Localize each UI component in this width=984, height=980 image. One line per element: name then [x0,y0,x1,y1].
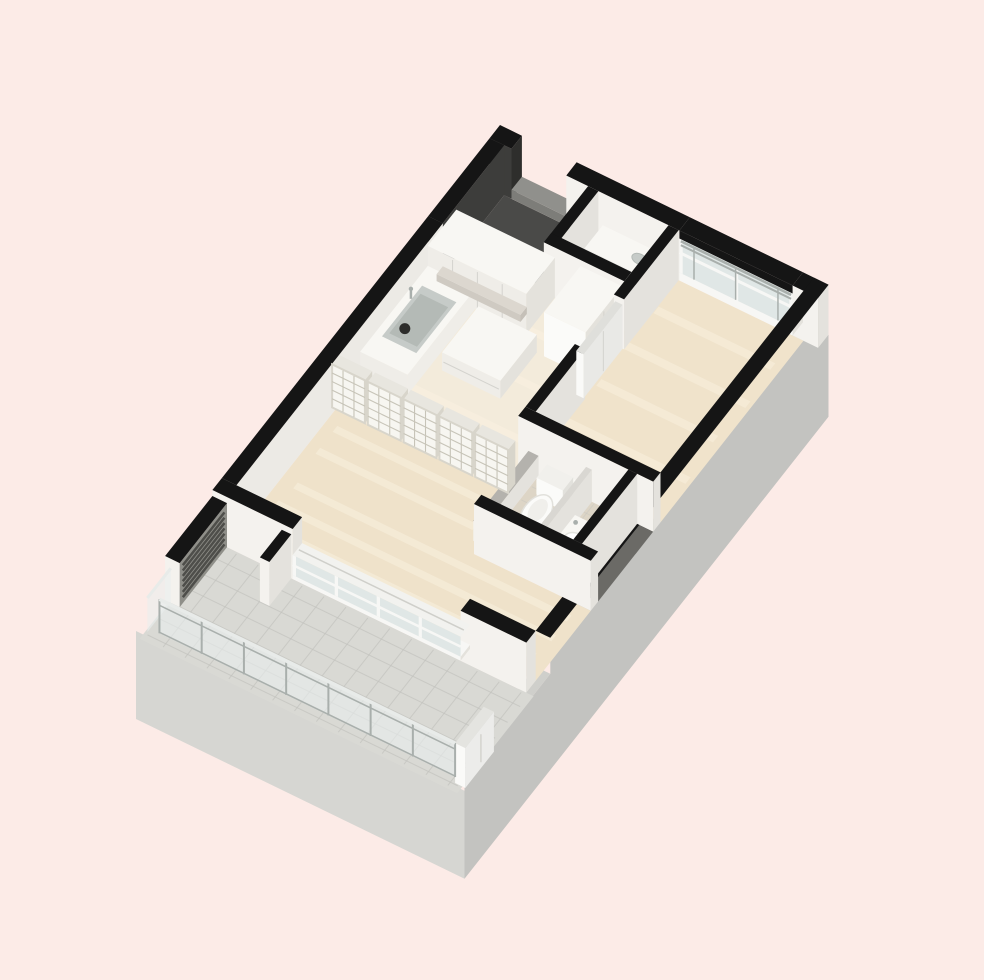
floorplan-3d-render [0,0,984,980]
floorplan-canvas [0,0,984,980]
